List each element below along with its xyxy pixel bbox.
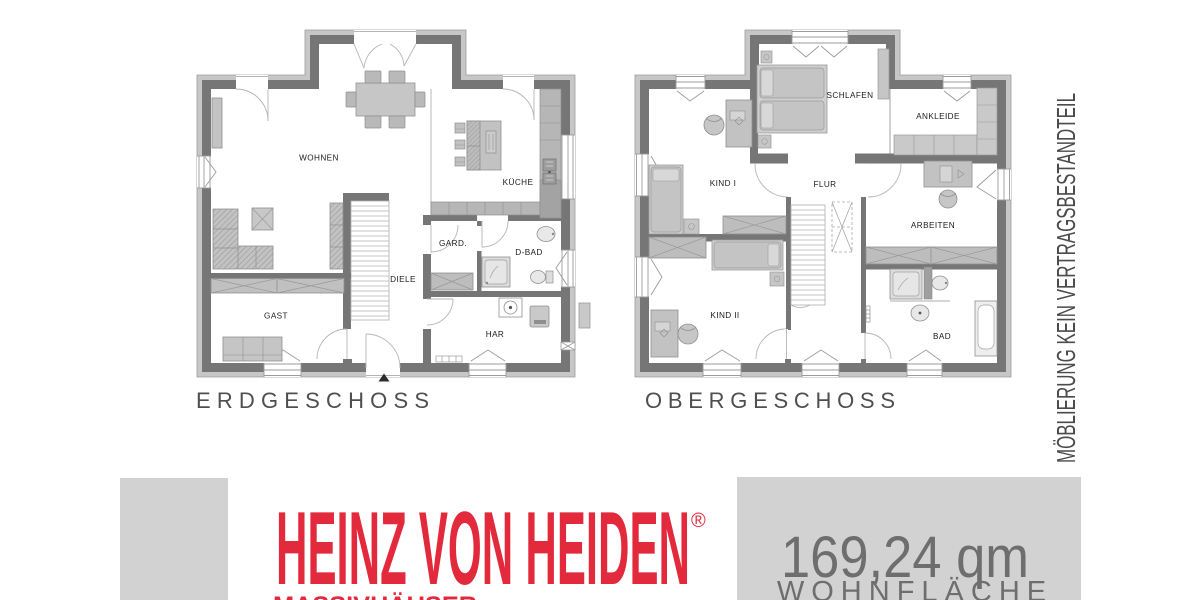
svg-text:OBERGESCHOSS: OBERGESCHOSS — [645, 388, 895, 413]
svg-text:ERDGESCHOSS: ERDGESCHOSS — [196, 388, 429, 413]
svg-text:HAR: HAR — [486, 330, 505, 339]
svg-text:FLUR: FLUR — [814, 180, 837, 189]
svg-text:MÖBLIERUNG KEIN VERTRAGSBESTAN: MÖBLIERUNG KEIN VERTRAGSBESTANDTEIL — [1051, 93, 1081, 463]
svg-text:®: ® — [691, 510, 706, 532]
svg-text:GARD.: GARD. — [439, 239, 467, 248]
svg-text:WOHNEN: WOHNEN — [299, 154, 339, 163]
svg-text:D-BAD: D-BAD — [515, 248, 542, 257]
svg-text:KIND I: KIND I — [710, 179, 737, 188]
svg-text:KÜCHE: KÜCHE — [503, 177, 534, 187]
svg-text:SCHLAFEN: SCHLAFEN — [827, 91, 874, 100]
svg-text:ARBEITEN: ARBEITEN — [911, 221, 955, 230]
svg-text:ANKLEIDE: ANKLEIDE — [916, 112, 960, 121]
svg-text:KIND II: KIND II — [710, 311, 739, 320]
svg-text:MASSIVHÄUSER: MASSIVHÄUSER — [273, 591, 477, 600]
svg-text:HEINZ VON HEIDEN: HEINZ VON HEIDEN — [276, 491, 690, 600]
svg-text:BAD: BAD — [933, 332, 951, 341]
svg-text:GAST: GAST — [264, 312, 288, 321]
svg-text:DIELE: DIELE — [390, 275, 416, 284]
svg-text:WOHNFLÄCHE: WOHNFLÄCHE — [777, 576, 1053, 600]
